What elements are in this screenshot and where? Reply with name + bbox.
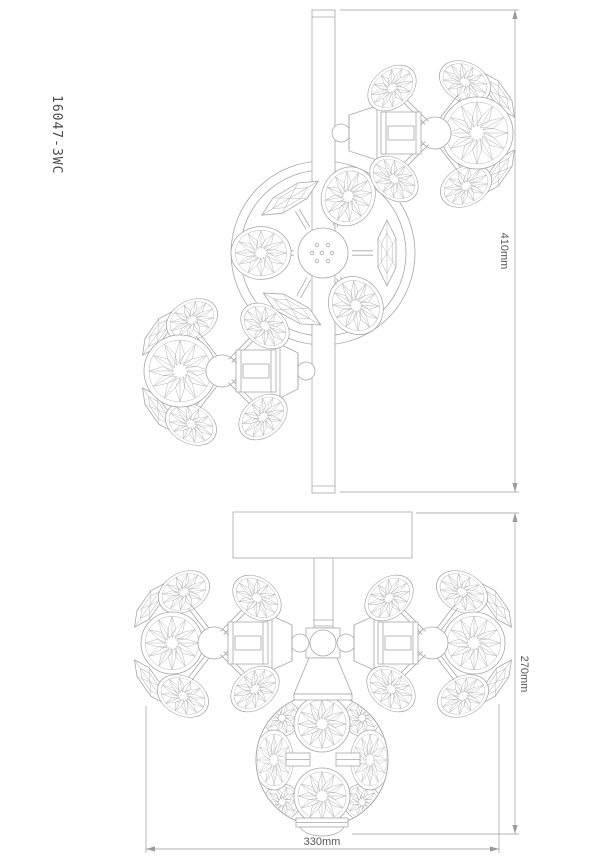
arrow-left-icon [146,846,155,851]
strut [295,211,306,229]
front-view [128,512,517,836]
down-bell [294,658,352,694]
disc-rim [150,666,216,726]
arm-bell [354,616,374,670]
disc-rim [430,666,496,726]
crystal-disc [231,227,291,280]
model-number-label: 16047-3WC [49,95,64,174]
center-hub [298,228,348,278]
arm-bell [280,344,298,398]
lamp-head [128,562,309,726]
arm-bell [349,106,377,160]
lamp-hub [419,117,451,149]
crystal-ball [441,97,513,169]
crystal-disc [294,696,350,752]
lamp-hub [198,627,230,659]
finial-cap [300,827,344,836]
disc-rim [429,562,495,622]
arm-bell [272,616,292,670]
dim-label-mount-bar: 410mm [498,233,510,270]
dim-label-width: 330mm [304,836,341,848]
crystal-ball [144,335,216,407]
link-bar [385,636,411,650]
strut [299,209,310,227]
lamp-hub [206,355,238,387]
strut [301,279,311,297]
arrow-down-icon [512,825,517,834]
crystal-ball [141,612,203,674]
link-bar [235,636,261,650]
stem [314,558,333,628]
crystal-disc [429,562,495,622]
arrow-up-icon [512,10,517,19]
crystal-disc [430,666,496,726]
technical-drawing: 410mm 270mm 330mm 16047-3WC [0,0,600,856]
bell-collar [294,694,352,700]
crystal-ball [443,612,505,674]
arrow-up-icon [512,513,517,522]
center-hub [310,630,336,656]
arrow-down-icon [512,483,517,492]
link-bar [243,364,269,378]
dim-label-height: 270mm [518,656,530,693]
mount-knob [297,362,315,380]
crystal-disc [151,562,217,622]
crystal-disc [294,768,350,824]
disc-rim [151,562,217,622]
top-view [136,10,520,493]
mount-knob [291,634,309,652]
crystal-lens [378,220,396,286]
ceiling-plate [233,512,412,558]
arrow-right-icon [490,846,499,851]
lamp-head [337,562,518,726]
link-bar [388,126,414,140]
mount-knob [337,634,355,652]
crystal-disc [150,666,216,726]
strut [297,277,307,295]
mount-knob [332,124,350,142]
lamp-hub [416,627,448,659]
